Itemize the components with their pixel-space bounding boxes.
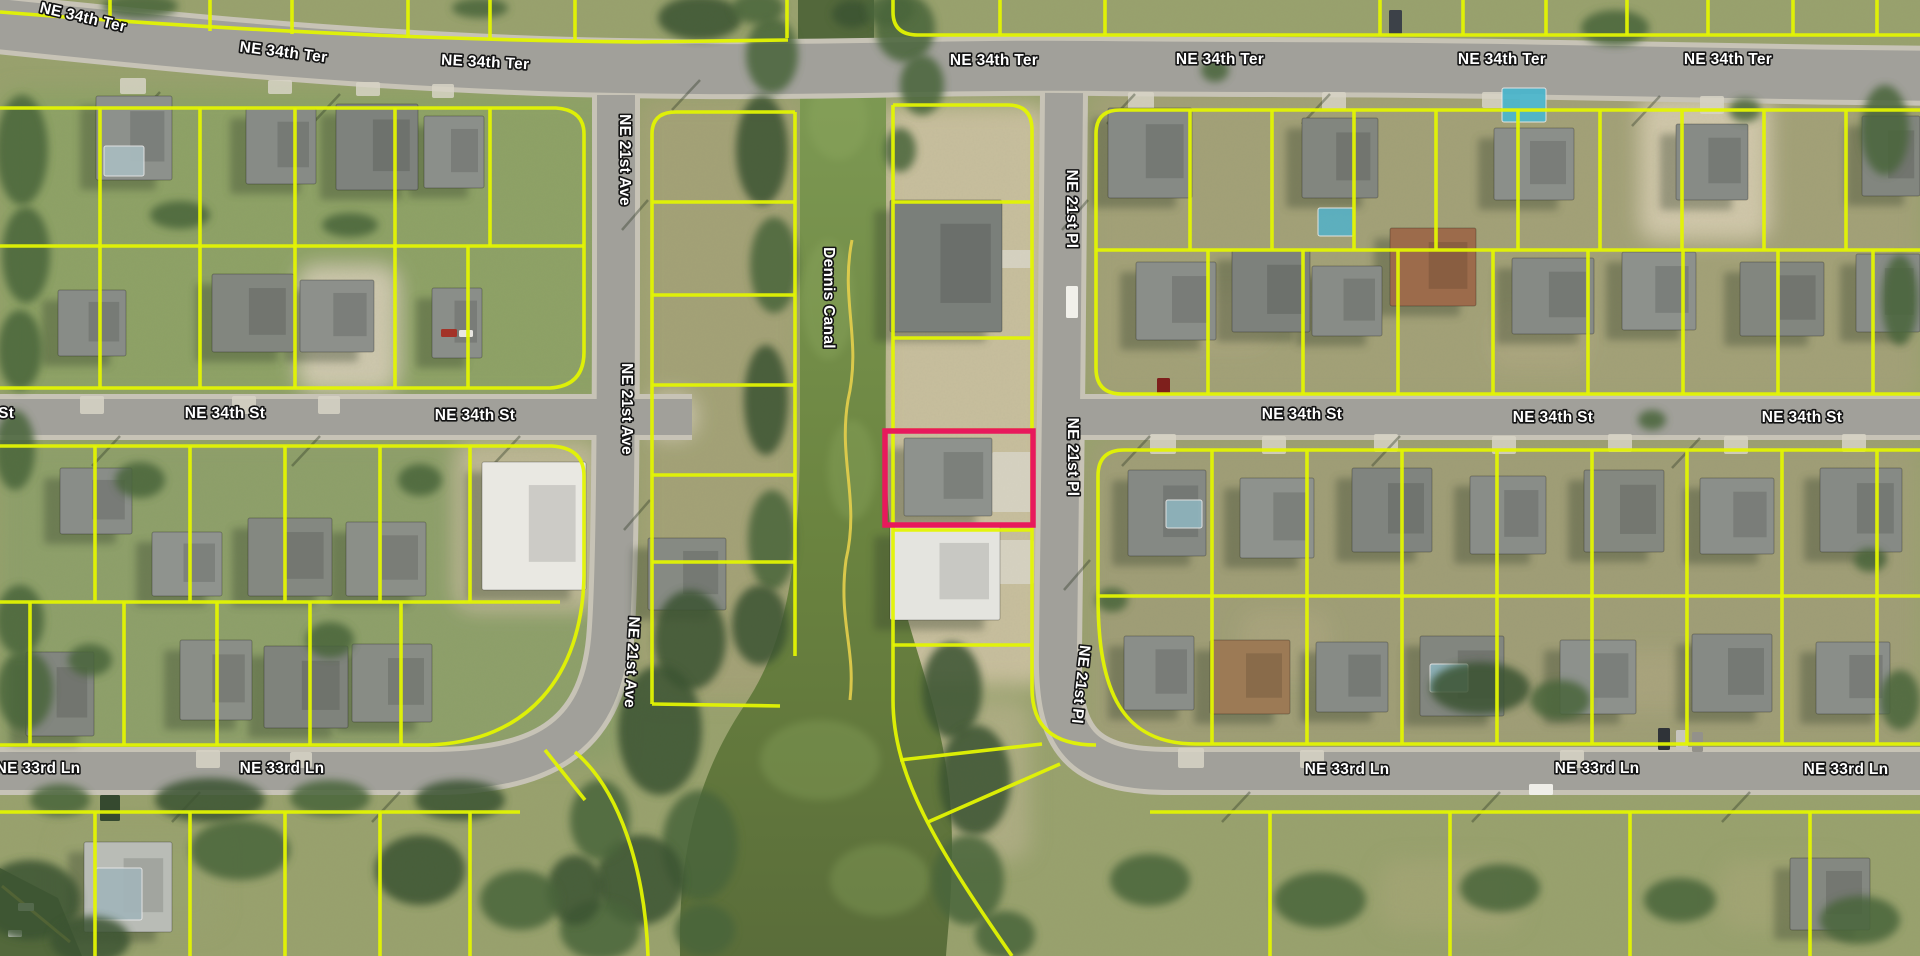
street-label-ave-1: NE 21st Ave [616,114,633,206]
pool [104,146,144,176]
canal-label: Dennis Canal [820,247,837,349]
pool [1502,88,1546,122]
street-label-ln-2: NE 33rd Ln [240,760,325,777]
vehicle [1692,732,1703,752]
street-label-ln-5: NE 33rd Ln [1804,761,1889,778]
pool [1318,208,1354,236]
street-label-ter-6: NE 34th Ter [1458,51,1546,68]
vehicle [459,330,473,337]
aerial-map-canvas[interactable]: NE 34th TerNE 34th TerNE 34th TerNE 34th… [0,0,1920,956]
street-label-pl-1: NE 21st Pl [1063,170,1080,249]
street-label-ter-7: NE 34th Ter [1684,51,1772,68]
street-label-ter-4: NE 34th Ter [950,52,1038,69]
street-label-st-3: NE 34th St [435,407,516,424]
vehicle [441,329,457,337]
aerial-parcel-map[interactable]: NE 34th TerNE 34th TerNE 34th TerNE 34th… [0,0,1920,956]
street-label-pl-2: NE 21st Pl [1064,418,1081,497]
vehicle [1658,728,1670,750]
pool [1166,500,1202,528]
vehicle [1157,378,1170,394]
street-label-ter-5: NE 34th Ter [1176,51,1264,68]
street-label-st-6: NE 34th St [1762,409,1843,426]
vehicle [1066,286,1078,318]
street-label-st-5: NE 34th St [1513,409,1594,426]
vehicle [100,795,120,821]
street-label-ave-2: NE 21st Ave [618,363,635,455]
street-label-st-2: NE 34th St [185,405,266,422]
street-label-st-4: NE 34th St [1262,406,1343,423]
street-label-st-1: NE 34th St [0,405,14,422]
vehicle [1529,784,1553,795]
street-label-ln-1: NE 33rd Ln [0,760,80,777]
pool [96,868,142,920]
vehicle [1389,10,1402,34]
street-label-ln-3: NE 33rd Ln [1305,761,1390,778]
street-label-ln-4: NE 33rd Ln [1555,760,1640,777]
